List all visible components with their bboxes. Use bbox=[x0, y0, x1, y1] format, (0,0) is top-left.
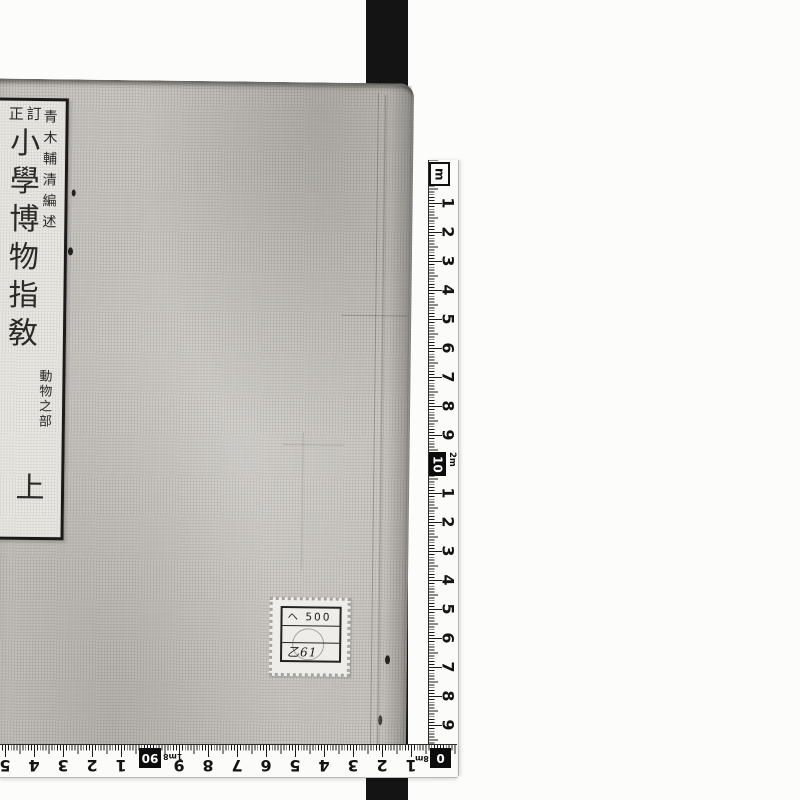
cm-number: 2 bbox=[440, 224, 458, 241]
round-stamp bbox=[292, 628, 324, 660]
cm-number: 2 bbox=[440, 514, 458, 531]
cm-number: 9 bbox=[170, 757, 188, 775]
cm-number: 3 bbox=[54, 757, 72, 775]
cm-number: 5 bbox=[440, 311, 458, 328]
cm-number: 2 bbox=[83, 757, 101, 775]
cm-number: 5 bbox=[286, 757, 304, 775]
cm-number: 9 bbox=[440, 717, 458, 734]
cm-number: 8 bbox=[440, 398, 458, 415]
cm-number: 1 bbox=[402, 757, 420, 775]
call-number-sticker: ヘ 500 乙61 bbox=[269, 597, 351, 677]
cm-number: 1 bbox=[440, 195, 458, 212]
cm-number: 5 bbox=[0, 757, 14, 775]
photo-frame: 訂正 小學博物指敎 青木輔清編述 動物之部 上 ヘ 500 乙61 m 10 2… bbox=[0, 0, 800, 800]
vertical-ruler: m 10 2m 123456789123456789 bbox=[428, 160, 459, 776]
cm-number: 3 bbox=[344, 757, 362, 775]
ruler-10cm-box: 10 bbox=[429, 452, 446, 476]
title-label: 訂正 小學博物指敎 青木輔清編述 動物之部 上 bbox=[0, 97, 69, 540]
cm-number: 6 bbox=[257, 757, 275, 775]
ink-speck bbox=[68, 247, 73, 255]
cover-crease bbox=[283, 444, 345, 446]
meter-annotation: 2m bbox=[447, 452, 457, 467]
cm-number: 1 bbox=[440, 485, 458, 502]
section-text: 動物之部 bbox=[34, 369, 53, 449]
ten-cm-text: 10 bbox=[431, 456, 445, 473]
cm-number: 9 bbox=[440, 427, 458, 444]
cm-number: 8 bbox=[199, 757, 217, 775]
book-cover: 訂正 小學博物指敎 青木輔清編述 動物之部 上 ヘ 500 乙61 bbox=[0, 78, 414, 751]
volume-text: 上 bbox=[13, 469, 45, 503]
cm-number: 3 bbox=[440, 253, 458, 270]
cm-number: 7 bbox=[228, 757, 246, 775]
cm-number: 6 bbox=[440, 340, 458, 357]
cm-number: 4 bbox=[440, 572, 458, 589]
cm-number: 6 bbox=[440, 630, 458, 647]
ink-speck bbox=[385, 655, 390, 664]
ruler-90cm-box: 90 bbox=[139, 748, 161, 768]
cm-number: 3 bbox=[440, 543, 458, 560]
horizontal-ruler: 90 1m8 0 8m 54321987654321 bbox=[0, 744, 457, 778]
ink-speck bbox=[72, 189, 76, 196]
meter-unit-text: m bbox=[433, 168, 447, 181]
call-number-line-1: ヘ 500 bbox=[282, 608, 339, 626]
cm-number: 7 bbox=[440, 659, 458, 676]
cm-number: 2 bbox=[373, 757, 391, 775]
cm-number: 1 bbox=[112, 757, 130, 775]
cm-number: 4 bbox=[440, 282, 458, 299]
cm-number: 7 bbox=[440, 369, 458, 386]
ruler-meter-box: m bbox=[429, 162, 450, 186]
ink-speck bbox=[378, 715, 382, 725]
cm-number: 8 bbox=[440, 688, 458, 705]
ruler-end-box: 0 bbox=[430, 748, 451, 768]
cm-number: 5 bbox=[440, 601, 458, 618]
author-text: 青木輔清編述 bbox=[37, 109, 60, 354]
cm-number: 4 bbox=[25, 757, 43, 775]
cm-number: 4 bbox=[315, 757, 333, 775]
cover-crease bbox=[301, 432, 304, 570]
